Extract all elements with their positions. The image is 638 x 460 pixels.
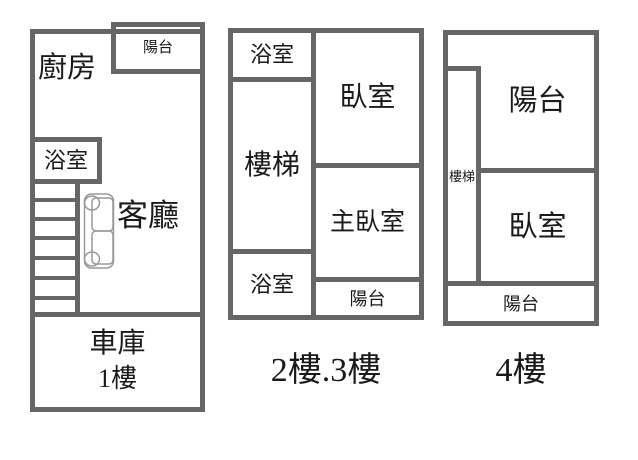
stair-step	[35, 296, 75, 300]
room-label-garage: 車庫	[89, 330, 145, 358]
room-label-balcony-bottom-4f: 陽台	[448, 286, 594, 321]
floor-caption-4f: 4樓	[443, 354, 599, 388]
room-label-balcony-2f: 陽台	[316, 282, 419, 315]
room-label-stairs-2f: 樓梯	[233, 82, 311, 249]
room-label-bathroom-1f: 浴室	[30, 137, 102, 184]
floor-caption-1f: 1樓	[98, 366, 137, 392]
garage-label-block: 車庫 1樓	[35, 317, 200, 405]
floor-caption-2f-3f: 2樓.3樓	[228, 354, 424, 388]
stair-step	[35, 236, 75, 240]
room-label-kitchen: 廚房	[38, 54, 96, 83]
room-label-living-room: 客廳	[117, 200, 179, 231]
floor-plan-canvas: 陽台 廚房 浴室 客廳 車庫 1樓	[0, 0, 638, 460]
room-label-bedroom-2f: 臥室	[316, 33, 419, 163]
room-label-bathroom-top-2f: 浴室	[233, 33, 311, 77]
stair-step	[35, 256, 75, 260]
room-label-master-bedroom: 主臥室	[316, 168, 419, 277]
stair-step	[35, 217, 75, 221]
room-label-balcony-top-4f: 陽台	[481, 35, 594, 168]
room-label-bathroom-bottom-2f: 浴室	[233, 254, 311, 315]
stair-step	[35, 198, 75, 202]
room-label-bedroom-4f: 臥室	[481, 173, 594, 281]
room-label-stairs-4f: 樓梯	[448, 71, 476, 281]
stair-step	[35, 276, 75, 280]
room-label-balcony-1f: 陽台	[111, 22, 205, 74]
sofa-icon	[83, 192, 115, 270]
stairs-side-wall-1f	[75, 184, 80, 312]
